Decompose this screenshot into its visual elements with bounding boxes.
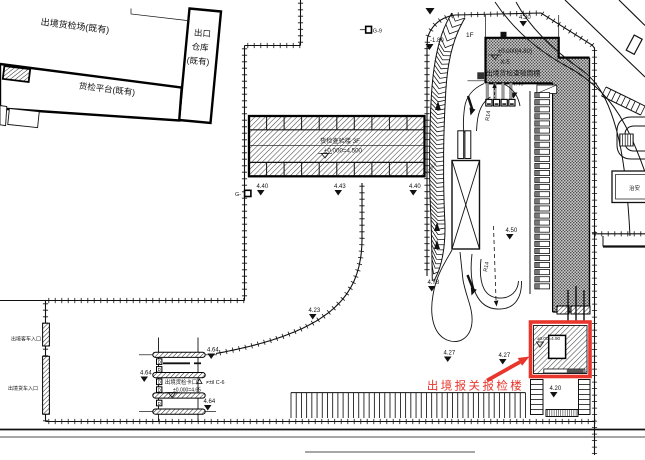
svg-text:出口: 出口: [194, 27, 212, 38]
svg-text:出境货车入口: 出境货车入口: [8, 385, 38, 392]
svg-text:4.43: 4.43: [334, 184, 346, 190]
svg-text:≠±il C-6: ≠±il C-6: [206, 380, 225, 386]
svg-text:仓库: 仓库: [191, 41, 209, 52]
svg-text:出境货检查验雨棚: 出境货检查验雨棚: [486, 69, 541, 78]
svg-text:4.50: 4.50: [506, 228, 518, 234]
svg-text:治安: 治安: [629, 184, 641, 192]
svg-text:±0.000(4.80): ±0.000(4.80): [498, 49, 532, 55]
svg-text:G-9: G-9: [373, 29, 382, 35]
svg-text:出境客车入口: 出境客车入口: [11, 336, 41, 343]
svg-text:X-5: X-5: [500, 60, 510, 66]
svg-text:G-: G-: [235, 192, 241, 198]
svg-text:(既有): (既有): [186, 55, 210, 67]
svg-text:4.40: 4.40: [257, 184, 269, 190]
svg-text:4.23: 4.23: [309, 308, 321, 314]
svg-text:4.64: 4.64: [204, 399, 216, 405]
svg-text:4.27: 4.27: [444, 351, 456, 357]
svg-text:1F: 1F: [466, 32, 474, 39]
svg-text:货检查验楼 3F: 货检查验楼 3F: [320, 137, 360, 145]
svg-text:4.20: 4.20: [550, 386, 562, 392]
svg-text:R14: R14: [485, 110, 492, 121]
svg-text:±0.00=4.90: ±0.00=4.90: [537, 336, 561, 341]
svg-text:4.27: 4.27: [499, 353, 511, 359]
svg-text:出境货检卡口: 出境货检卡口: [165, 378, 197, 386]
svg-text:4.40: 4.40: [409, 184, 421, 190]
svg-text:4.64: 4.64: [207, 348, 219, 354]
svg-text:4.64: 4.64: [140, 371, 152, 377]
svg-text:出境报关报检楼: 出境报关报检楼: [427, 379, 524, 393]
